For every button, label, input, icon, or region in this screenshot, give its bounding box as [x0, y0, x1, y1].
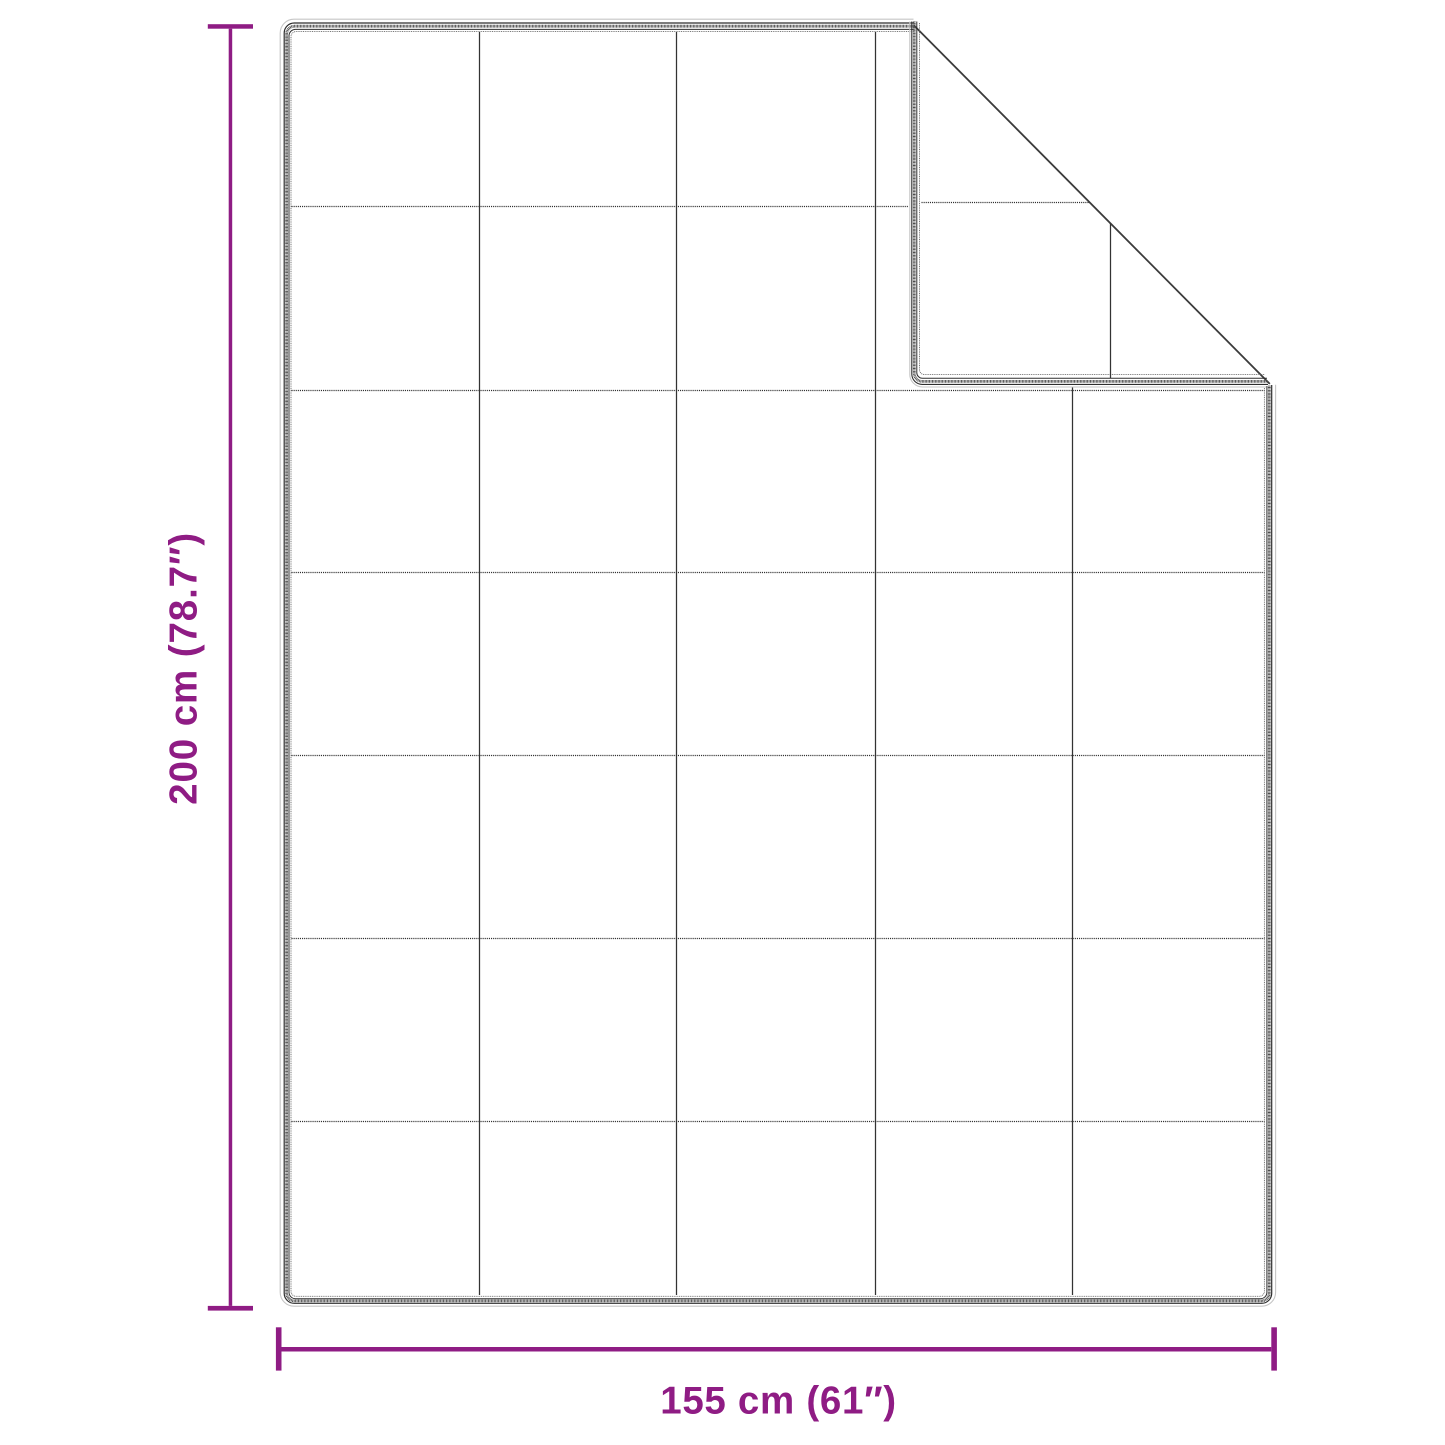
svg-text:200 cm (78.7″): 200 cm (78.7″) — [163, 532, 206, 805]
svg-text:155 cm (61″): 155 cm (61″) — [660, 1380, 897, 1423]
